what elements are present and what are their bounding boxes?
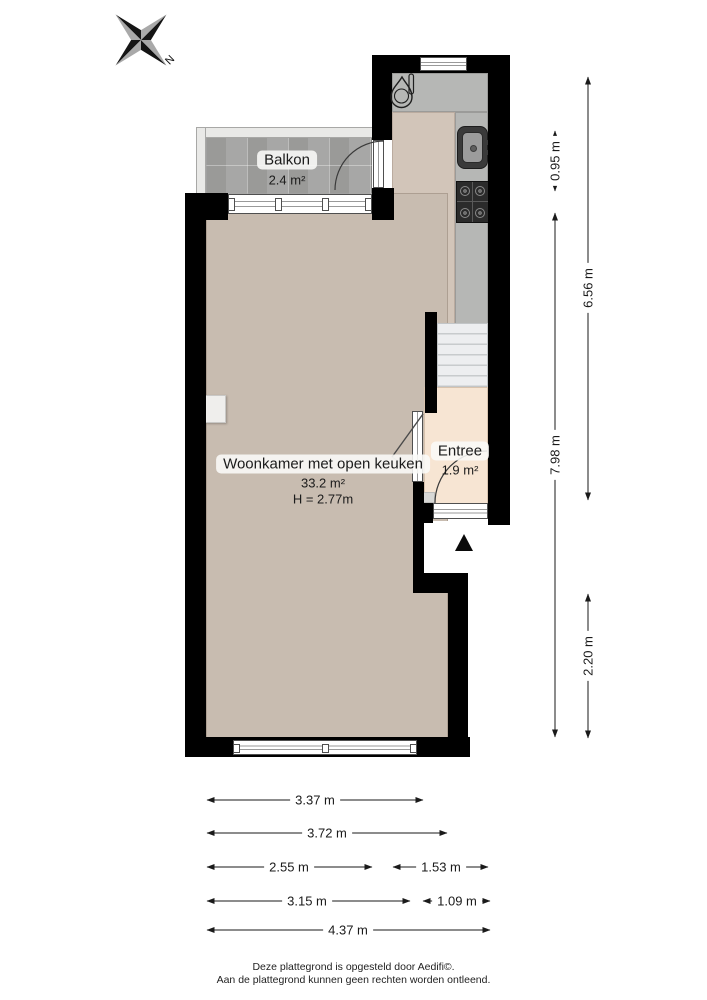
balcony-door xyxy=(373,140,384,188)
room-label-entree: Entree xyxy=(431,442,489,461)
entrance-porch xyxy=(424,521,512,573)
wall xyxy=(424,503,433,523)
room-area-balkon: 2.4 m² xyxy=(269,173,306,188)
wall xyxy=(206,193,228,220)
stove-icon xyxy=(456,181,489,223)
window-mullion xyxy=(322,744,329,753)
sink-drain xyxy=(470,145,477,152)
dim-label-balcony-depth: 0.95 m xyxy=(548,136,563,186)
sink-icon xyxy=(457,126,488,169)
window-kitchen xyxy=(420,57,467,71)
staircase xyxy=(437,323,488,387)
wall xyxy=(448,593,468,757)
dim-label-bottom-3: 2.55 m xyxy=(264,860,314,875)
wall xyxy=(185,193,206,757)
window-mullion xyxy=(365,198,372,211)
dim-label-bottom-7: 4.37 m xyxy=(323,923,373,938)
room-label-balkon: Balkon xyxy=(257,151,317,170)
footer-line1: Deze plattegrond is opgesteld door Aedif… xyxy=(0,961,707,974)
burner-icon xyxy=(475,208,485,218)
compass-north-label: N xyxy=(162,52,176,66)
dim-label-living-height: 7.98 m xyxy=(548,430,563,480)
window-mullion xyxy=(233,744,240,753)
wall xyxy=(372,55,392,140)
threshold-step xyxy=(423,492,435,503)
wall xyxy=(372,188,394,220)
sink-basin xyxy=(462,132,483,163)
footer-attribution: Deze plattegrond is opgesteld door Aedif… xyxy=(0,961,707,987)
window-mullion xyxy=(410,744,417,753)
wall xyxy=(413,573,468,593)
dim-label-bottom-5: 3.15 m xyxy=(282,894,332,909)
compass-icon: N xyxy=(90,0,192,91)
dim-label-bottom-1: 3.37 m xyxy=(290,793,340,808)
window-mullion xyxy=(228,198,235,211)
front-door xyxy=(433,503,488,519)
dim-label-bottom-4: 1.53 m xyxy=(416,860,466,875)
room-ceiling-woonkamer: H = 2.77m xyxy=(293,492,353,507)
footer-line2: Aan de plattegrond kunnen geen rechten w… xyxy=(0,974,707,987)
room-label-woonkamer: Woonkamer met open keuken xyxy=(216,455,430,474)
floor-plan-page: N 0.95 m 7 xyxy=(0,0,707,1000)
burner-icon xyxy=(460,186,470,196)
window-balcony xyxy=(228,194,372,214)
window-mullion xyxy=(322,198,329,211)
balcony-railing-top xyxy=(196,127,374,138)
burner-icon xyxy=(475,186,485,196)
dim-label-lower-height: 2.20 m xyxy=(581,631,596,681)
wall xyxy=(425,312,437,413)
dim-label-bottom-2: 3.72 m xyxy=(302,826,352,841)
room-area-woonkamer: 33.2 m² xyxy=(301,476,345,491)
window-mullion xyxy=(275,198,282,211)
dim-label-upper-height: 6.56 m xyxy=(581,263,596,313)
wall-niche xyxy=(205,395,226,423)
balcony-railing-left xyxy=(196,127,206,194)
kitchen-counter-top xyxy=(392,73,488,112)
dim-label-bottom-6: 1.09 m xyxy=(432,894,482,909)
wall xyxy=(488,55,510,525)
room-area-entree: 1.9 m² xyxy=(442,463,479,478)
burner-icon xyxy=(460,208,470,218)
window-bottom xyxy=(233,740,417,755)
